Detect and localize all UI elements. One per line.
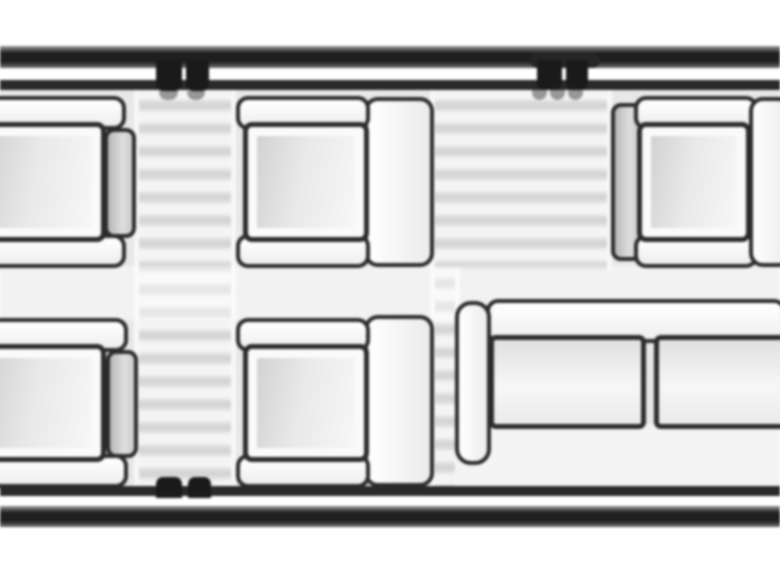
seat-backrest	[364, 97, 434, 267]
seat-cushion-pad	[257, 358, 355, 448]
door-hinge-mark	[188, 477, 211, 498]
divan-cushion	[489, 335, 646, 429]
seat-cushion-pad	[651, 136, 737, 228]
divan-front-floor	[456, 424, 780, 486]
cabin-scene	[0, 0, 780, 574]
door-hinge-mark	[537, 60, 562, 90]
seat-backrest	[364, 315, 434, 487]
entry-stripes-mid-upper	[430, 90, 612, 270]
divan-cushion	[654, 335, 780, 429]
cabin-diagram	[0, 0, 780, 574]
seat-side-bar	[106, 350, 138, 458]
fuselage-wall-bottom-outer	[0, 506, 780, 527]
seat-cushion	[0, 344, 106, 462]
fuselage-wall-top-outer	[0, 46, 780, 68]
fuselage-wall-top-inner	[0, 80, 780, 90]
door-hinge-mark	[186, 60, 209, 91]
door-hinge-mark	[566, 60, 588, 90]
seat-cushion	[0, 122, 106, 242]
seat-cushion-pad	[257, 136, 355, 228]
seat-cushion	[243, 344, 369, 462]
seat-cushion	[637, 122, 751, 242]
seat-cushion-pad	[0, 358, 92, 448]
door-hinge-mark	[156, 477, 182, 498]
divan-armrest	[455, 301, 491, 465]
fuselage-wall-bottom-inner	[0, 486, 780, 496]
seat-cushion-pad	[0, 136, 92, 228]
seat-cushion	[243, 122, 369, 242]
seat-backrest-clipped	[749, 97, 780, 267]
seat-side-bar	[104, 128, 136, 238]
door-hinge-mark	[156, 60, 182, 91]
